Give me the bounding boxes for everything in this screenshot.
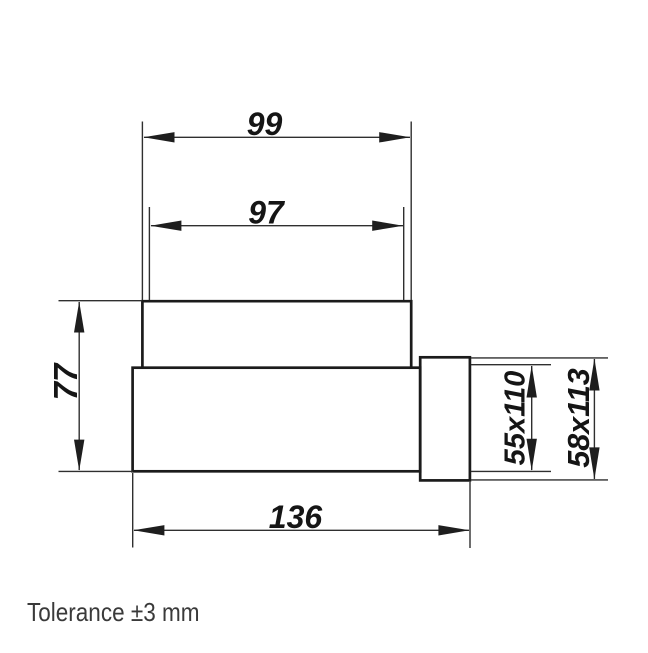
svg-text:136: 136 xyxy=(269,499,323,535)
svg-text:55x110: 55x110 xyxy=(500,371,532,466)
svg-text:97: 97 xyxy=(248,195,286,231)
svg-text:58x113: 58x113 xyxy=(562,368,596,468)
svg-text:Tolerance ±3 mm: Tolerance ±3 mm xyxy=(27,597,200,627)
svg-text:99: 99 xyxy=(247,106,283,142)
svg-text:77: 77 xyxy=(47,362,84,400)
